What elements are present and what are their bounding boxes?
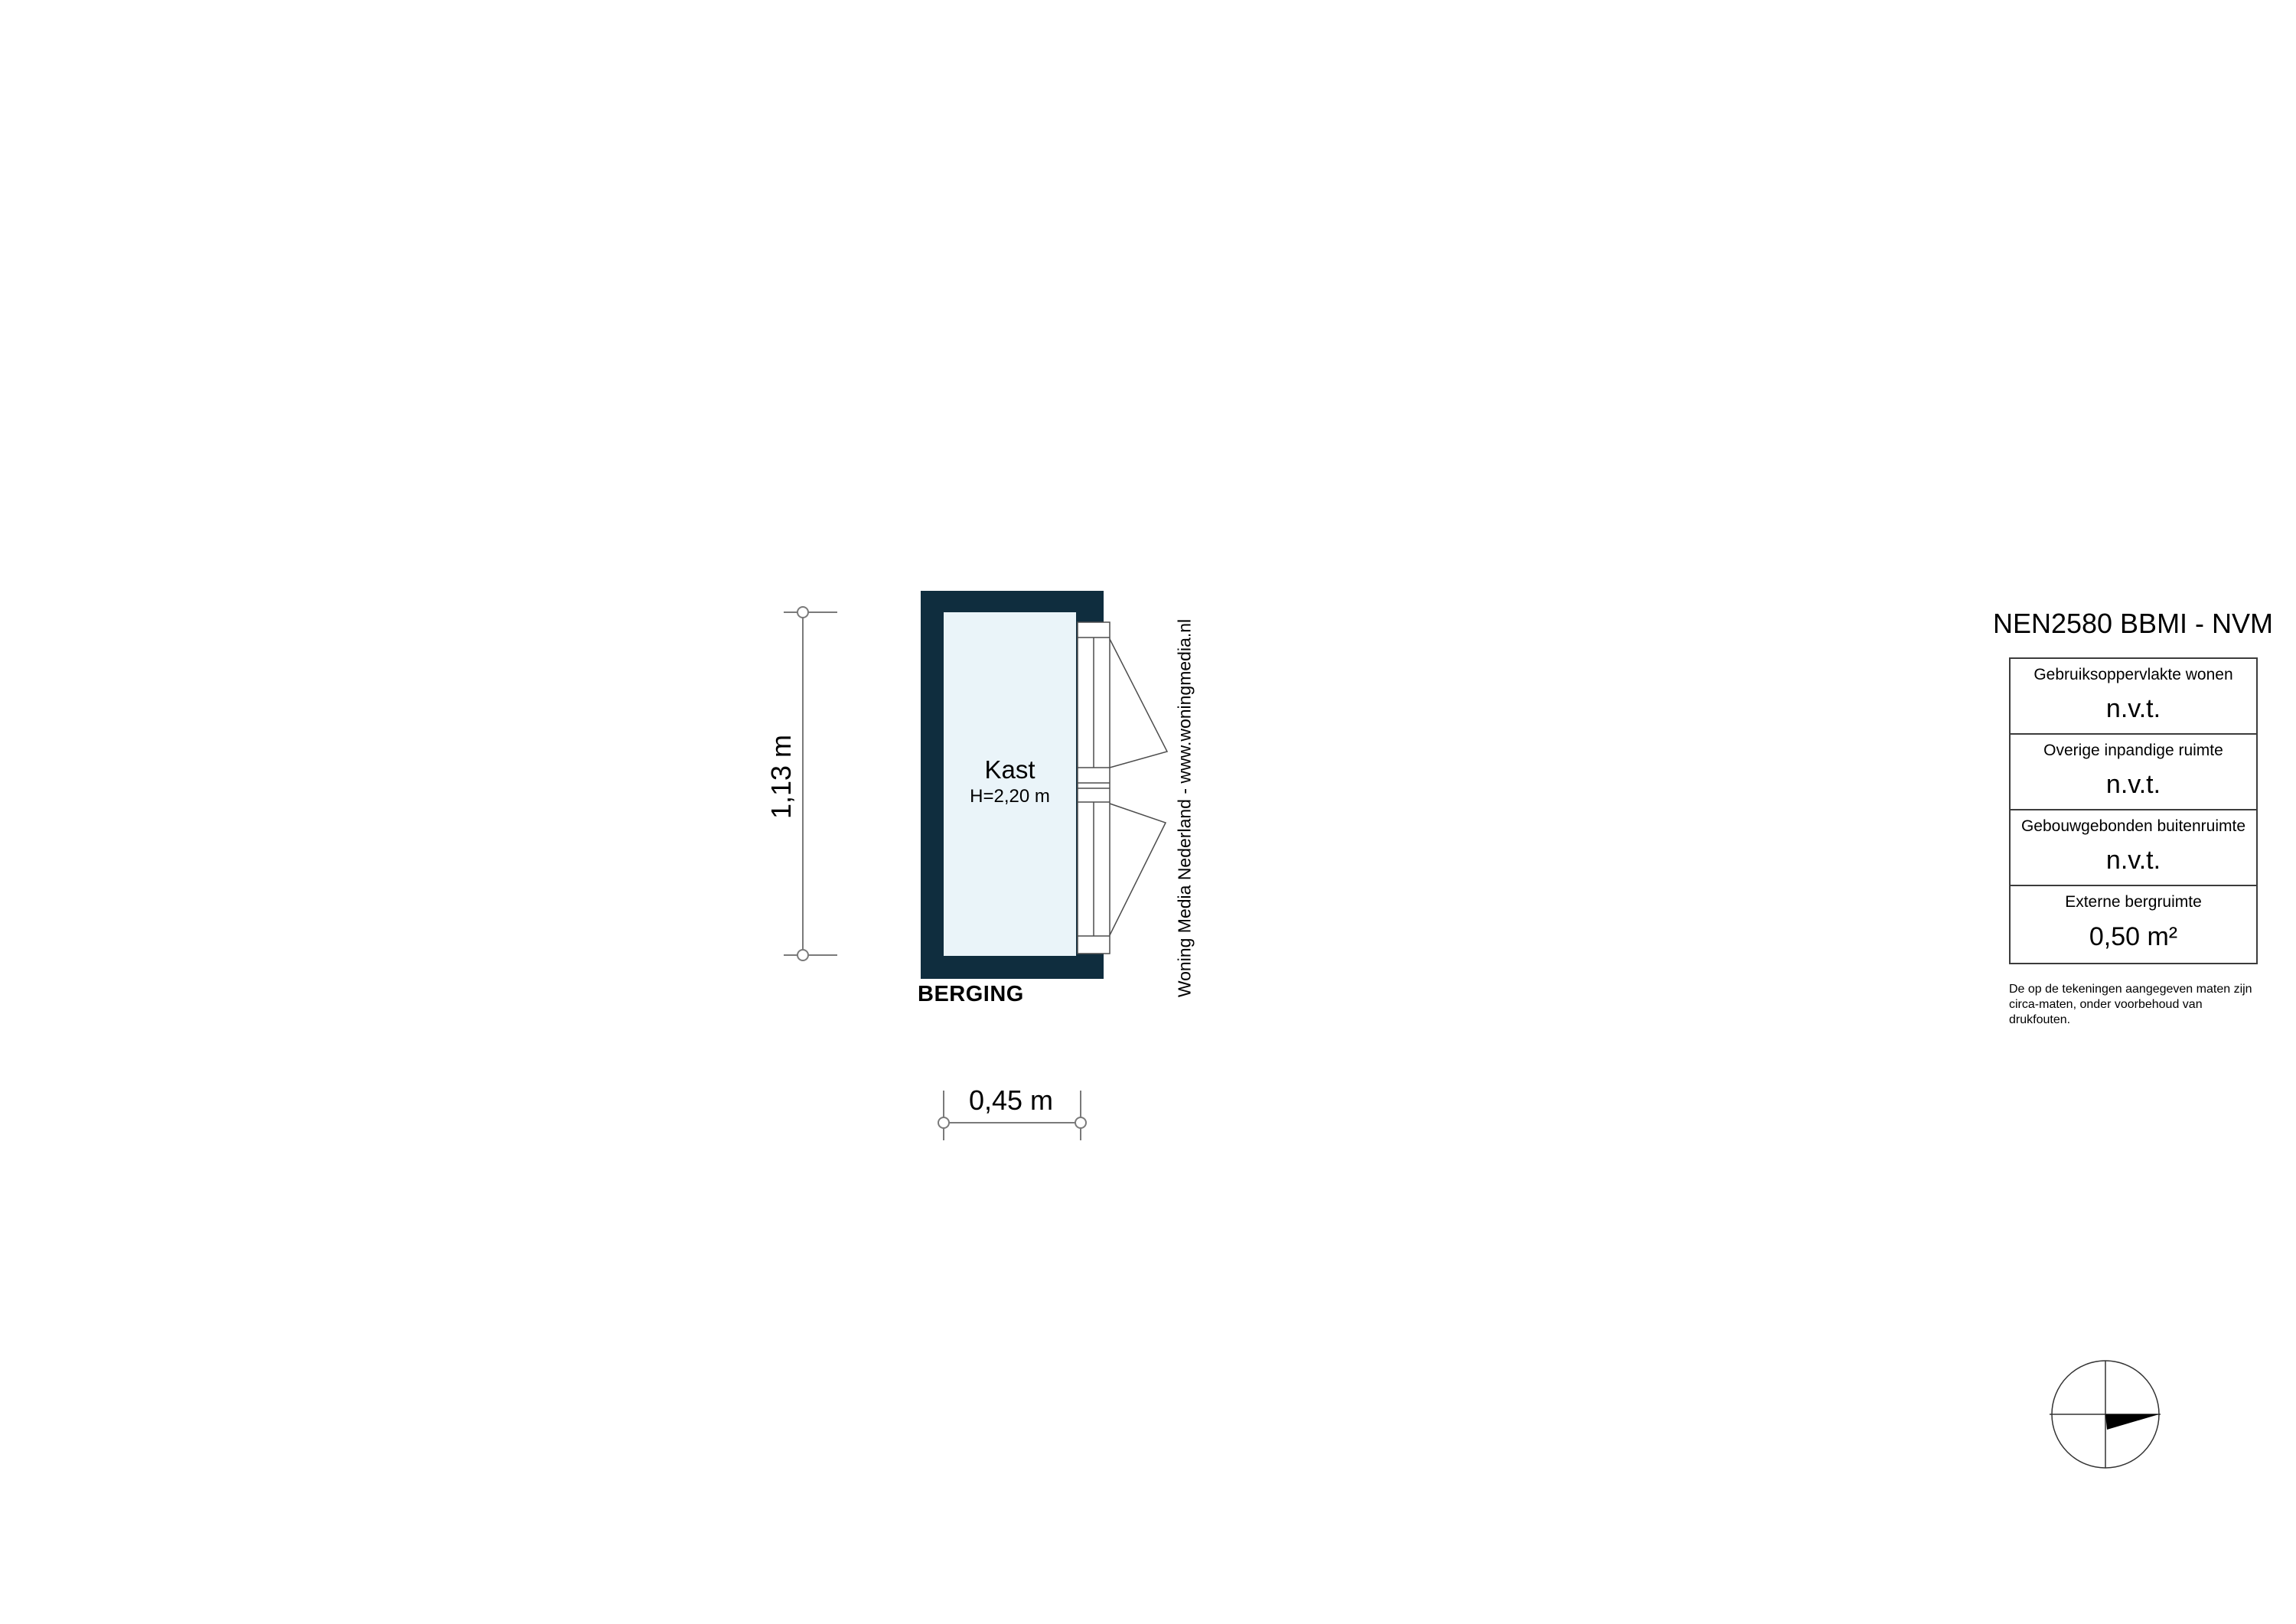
legend-row-gebruiksoppervlakte: Gebruiksoppervlakte wonen n.v.t. [2011,659,2256,735]
legend-table: Gebruiksoppervlakte wonen n.v.t. Overige… [2009,657,2258,964]
dim-v-endpoint-bottom [797,950,808,960]
watermark-text: Woning Media Nederland - www.woningmedia… [1175,619,1195,997]
legend-row-label: Gebouwgebonden buitenruimte [2021,817,2245,836]
legend-row-overige-inpandige: Overige inpandige ruimte n.v.t. [2011,735,2256,810]
dim-h-endpoint-right [1075,1117,1086,1128]
legend-row-value: n.v.t. [2106,836,2161,885]
compass-needle [2105,1414,2159,1430]
legend-row-gebouwgebonden: Gebouwgebonden buitenruimte n.v.t. [2011,810,2256,886]
legend-row-label: Externe bergruimte [2065,893,2202,911]
legend-row-value: 0,50 m² [2089,911,2177,963]
legend-row-value: n.v.t. [2106,684,2161,733]
legend-row-label: Gebruiksoppervlakte wonen [2033,666,2232,684]
legend-row-label: Overige inpandige ruimte [2043,742,2223,760]
room-label-block: Kast H=2,20 m [944,756,1076,807]
legend-title: NEN2580 BBMI - NVM [1993,608,2273,640]
legend-row-value: n.v.t. [2106,760,2161,809]
area-label: BERGING [918,982,1024,1007]
door-swing-top [1110,639,1167,768]
room-name: Kast [944,756,1076,784]
dim-v-endpoint-top [797,607,808,618]
compass-icon [2050,1361,2161,1468]
legend-row-externe-bergruimte: Externe bergruimte 0,50 m² [2011,886,2256,963]
legend-disclaimer: De op de tekeningen aangegeven maten zij… [2009,982,2265,1028]
floorplan-drawing [0,0,2296,1624]
dimension-label-horizontal: 0,45 m [969,1084,1053,1117]
room-ceiling-height: H=2,20 m [944,787,1076,807]
door-swing-bottom [1110,804,1166,935]
double-door [1078,622,1167,954]
dim-h-endpoint-left [938,1117,949,1128]
floorplan-page: Kast H=2,20 m BERGING 1,13 m 0,45 m Woni… [0,0,2296,1624]
dimension-label-vertical: 1,13 m [765,735,797,819]
